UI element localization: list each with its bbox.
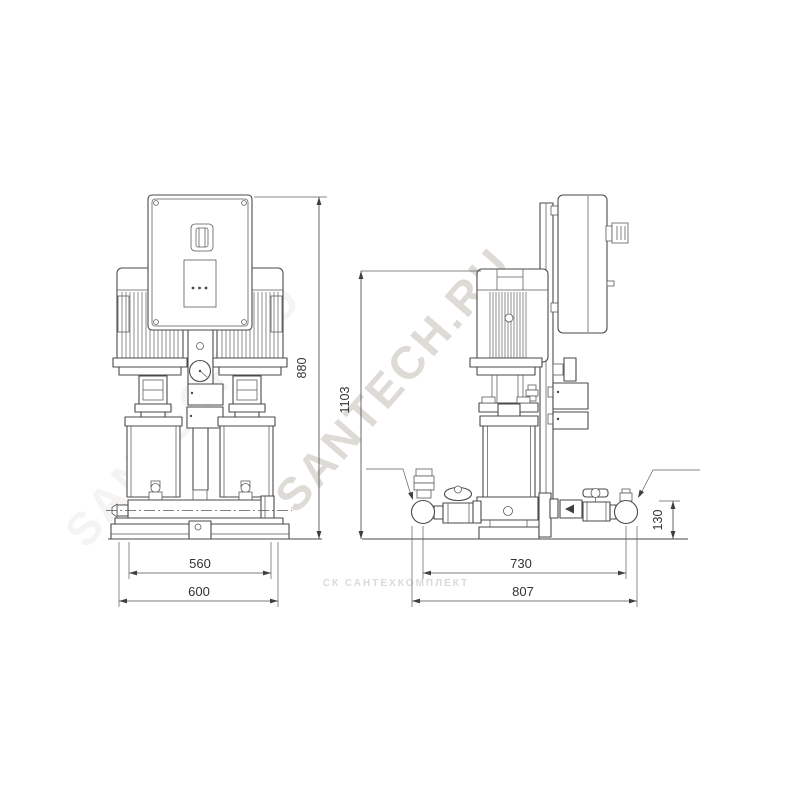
cabinet-display — [184, 260, 216, 307]
control-cabinet — [148, 195, 252, 330]
watermark-bottom: СК САНТЕХКОМПЛЕКТ — [323, 578, 470, 589]
front-view: 880 560 600 — [106, 195, 327, 607]
side-pump — [479, 375, 538, 497]
side-cable-gland-icon — [606, 223, 628, 243]
dim-label-560: 560 — [189, 556, 211, 571]
suction-pipework — [366, 469, 481, 524]
dim-label-1103: 1103 — [338, 387, 352, 414]
discharge-pipework — [550, 470, 700, 524]
side-motor — [470, 269, 548, 375]
side-cabinet — [551, 195, 628, 333]
suction-valve — [443, 486, 474, 523]
dimension-130: 130 — [651, 501, 680, 539]
suction-leader-line — [366, 469, 413, 500]
dim-label-880: 880 — [295, 358, 309, 379]
discharge-port — [615, 501, 638, 524]
discharge-leader-line — [638, 470, 700, 498]
dim-label-130: 130 — [651, 510, 665, 531]
discharge-valve — [583, 489, 610, 522]
dimension-560: 560 — [129, 542, 271, 579]
front-base-frame — [108, 518, 322, 539]
watermark-bottom-text: СК САНТЕХКОМПЛЕКТ — [323, 578, 470, 589]
cable-gland-icon — [191, 224, 213, 251]
vent-stack — [414, 469, 434, 498]
drawing-page: SANTECH.RU SANTECH.RU СК САНТЕХКОМПЛЕКТ — [0, 0, 800, 800]
technical-drawing-canvas: SANTECH.RU SANTECH.RU СК САНТЕХКОМПЛЕКТ — [0, 0, 800, 800]
side-instruments — [548, 358, 588, 429]
pressure-gauge — [190, 361, 211, 382]
suction-port — [412, 501, 435, 524]
dim-label-730: 730 — [510, 556, 532, 571]
flow-direction-box — [560, 500, 582, 518]
side-base-block — [477, 493, 551, 539]
dim-label-600: 600 — [188, 584, 210, 599]
dimension-600: 600 — [119, 542, 278, 607]
discharge-plug — [620, 489, 632, 501]
dim-label-807: 807 — [512, 584, 534, 599]
